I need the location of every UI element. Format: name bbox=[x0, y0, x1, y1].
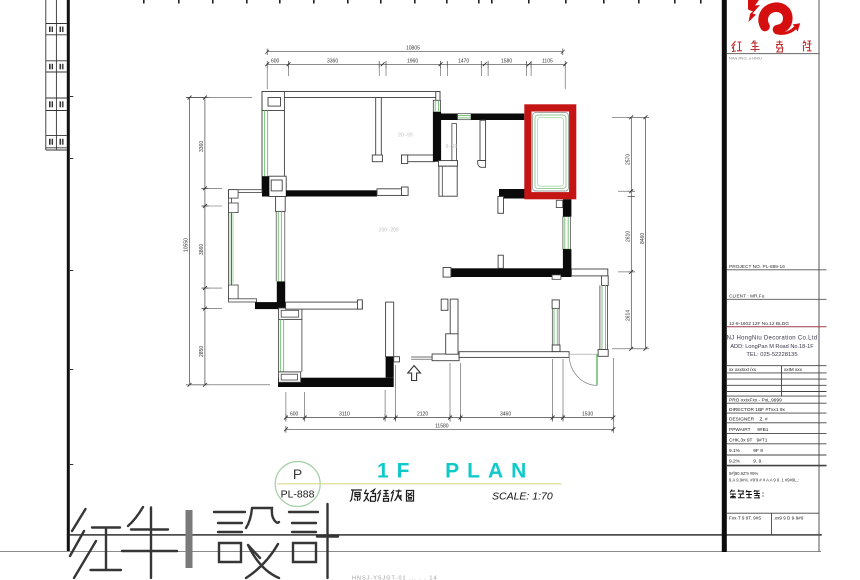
svg-text:1580: 1580 bbox=[501, 58, 512, 64]
svg-text:3860: 3860 bbox=[199, 244, 205, 255]
svg-text:9.2% 9. 9.: 9.2% 9. 9. bbox=[729, 459, 763, 465]
svg-text:P: P bbox=[293, 466, 302, 482]
svg-text:DIRECTOR 1BF #Txx1 9x: DIRECTOR 1BF #Txx1 9x bbox=[729, 407, 785, 413]
svg-text:9#]90.9Z'9 #9%: 9#]90.9Z'9 #9% bbox=[729, 471, 758, 476]
svg-text:1470: 1470 bbox=[458, 58, 469, 64]
svg-text:·9·-99: ·9·-99 bbox=[444, 144, 458, 150]
svg-text:PRO·xxIxFxx - PxL.9999: PRO·xxIxFxx - PxL.9999 bbox=[729, 398, 782, 404]
svg-text:10550: 10550 bbox=[184, 238, 190, 252]
svg-text:ADD: LongPan M Road No.18-1F: ADD: LongPan M Road No.18-1F bbox=[730, 344, 814, 350]
svg-text:PL-888: PL-888 bbox=[281, 489, 315, 501]
svg-text:SCALE: 1:70: SCALE: 1:70 bbox=[492, 491, 553, 503]
svg-text:1105: 1105 bbox=[542, 58, 553, 64]
svg-text:1F PLAN: 1F PLAN bbox=[377, 460, 534, 483]
svg-text:xxIM xxx: xxIM xxx bbox=[784, 367, 803, 372]
svg-text:PROJECT NO. PL-888-16: PROJECT NO. PL-888-16 bbox=[729, 264, 785, 270]
svg-text:3360: 3360 bbox=[327, 58, 338, 64]
svg-text:2570: 2570 bbox=[626, 154, 632, 165]
svg-text:·200·-209: ·200·-209 bbox=[377, 228, 399, 234]
svg-text:9.A 9.9#%. #9'9 # # A A 9 9 .1: 9.A 9.9#%. #9'9 # # A A 9 9 .1 #9#9L.: bbox=[729, 478, 799, 483]
svg-text:·20·-99: ·20·-99 bbox=[397, 133, 413, 139]
svg-text:2610: 2610 bbox=[626, 231, 632, 242]
svg-text:3110: 3110 bbox=[339, 412, 350, 418]
svg-text:10805: 10805 bbox=[406, 46, 420, 52]
svg-text:9.1% 9F 9: 9.1% 9F 9 bbox=[729, 448, 763, 454]
svg-text:1530: 1530 bbox=[582, 412, 593, 418]
svg-text:1960: 1960 bbox=[407, 58, 418, 64]
svg-text:TEL: 025-52228135: TEL: 025-52228135 bbox=[746, 352, 797, 358]
svg-text:NJ HongNiu Decoration Co.Ltd: NJ HongNiu Decoration Co.Ltd bbox=[727, 336, 818, 342]
svg-text:NANJING, a HNIU: NANJING, a HNIU bbox=[729, 55, 762, 60]
svg-text:CHK,3x 9T 9#T1: CHK,3x 9T 9#T1 bbox=[729, 438, 768, 444]
svg-text:2120: 2120 bbox=[417, 412, 428, 418]
svg-text:3360: 3360 bbox=[199, 141, 205, 152]
svg-text:8460: 8460 bbox=[640, 233, 646, 244]
svg-text:CLIENT : MR.Fu: CLIENT : MR.Fu bbox=[729, 294, 765, 300]
svg-text:Fxx·T 9 9T. 9#S: Fxx·T 9 9T. 9#S bbox=[729, 516, 761, 521]
svg-text:DESIGNER Z. #: DESIGNER Z. # bbox=[729, 417, 768, 423]
svg-text:11580: 11580 bbox=[435, 424, 449, 430]
svg-text:PPWAIRT 9#B1: PPWAIRT 9#B1 bbox=[729, 427, 769, 433]
svg-text:HNSJ-YSJGT-01 ... . . 14: HNSJ-YSJGT-01 ... . . 14 bbox=[352, 576, 437, 580]
svg-text:2614: 2614 bbox=[626, 310, 632, 321]
svg-text:.xx9 9 D 9·9#9: .xx9 9 D 9·9#9 bbox=[774, 516, 804, 521]
svg-text:2850: 2850 bbox=[199, 346, 205, 357]
svg-text:12-9-1602 12F No.12 BLDG: 12-9-1602 12F No.12 BLDG bbox=[729, 321, 789, 327]
svg-text:600: 600 bbox=[271, 58, 280, 64]
svg-text:xx xxxIxxI /xx: xx xxxIxxI /xx bbox=[729, 367, 757, 372]
svg-text:3460: 3460 bbox=[500, 412, 511, 418]
svg-text:600: 600 bbox=[290, 412, 299, 418]
